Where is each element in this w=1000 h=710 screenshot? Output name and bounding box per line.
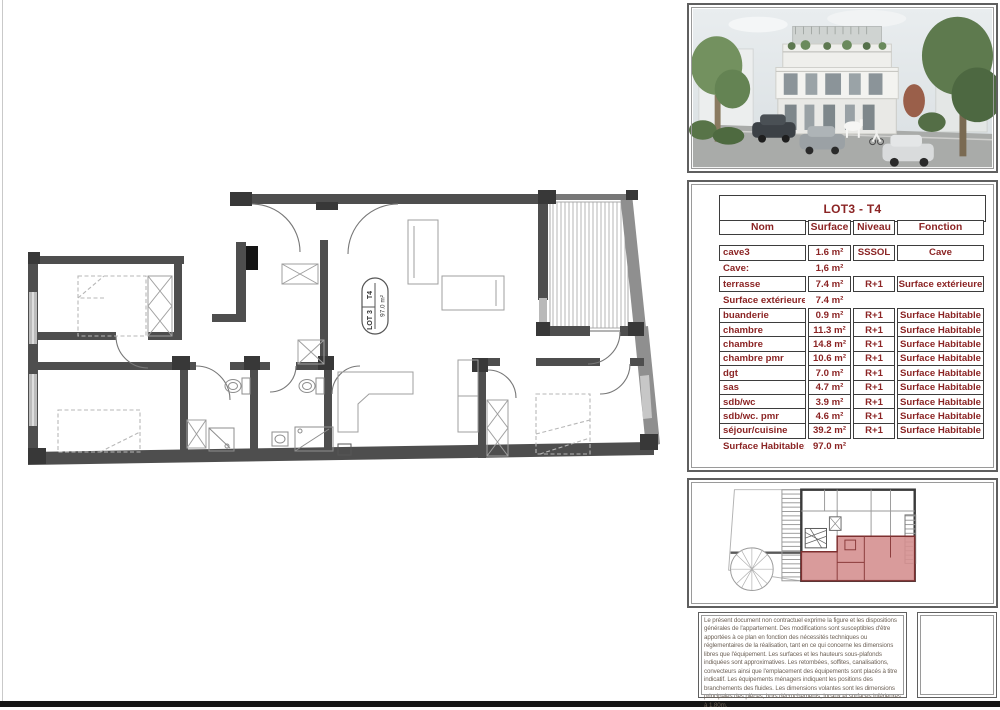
col-header-niveau: Niveau [853, 220, 895, 235]
cell-surface: 39.2 m² [808, 423, 851, 439]
surface-table: LOT3 - T4 Nom Surface Niveau Fonction ca… [719, 195, 986, 456]
lot-type: T4 [367, 291, 374, 299]
site-plan-panel [687, 478, 998, 608]
table-row: séjour/cuisine 39.2 m² R+1 Surface Habit… [719, 423, 986, 439]
legal-disclaimer: Le présent document non contractuel expr… [704, 617, 901, 693]
cell-surface: 1.6 m² [808, 245, 851, 261]
cell-nom: séjour/cuisine [719, 423, 806, 439]
table-row: terrasse 7.4 m² R+1 Surface extérieure [719, 276, 986, 292]
cell-surface: 7.4 m² [808, 293, 851, 307]
cell-niveau [853, 262, 895, 276]
site-plan [689, 480, 996, 606]
cell-niveau [853, 293, 895, 307]
table-summary-row: Surface Habitable: 97.0 m² [719, 440, 986, 454]
floor-plan-drawing: LOT 3 T4 97.0 m² [0, 180, 690, 700]
building-rendering-panel [687, 3, 998, 173]
terrace [550, 202, 628, 328]
cell-nom: Surface extérieure: 1 [719, 293, 806, 307]
plan-sheet: { "colors": { "accent_red": "#8b2424", "… [0, 0, 1000, 707]
cell-fonction: Surface extérieure [897, 276, 984, 292]
cell-fonction: Cave [897, 245, 984, 261]
table-title: LOT3 - T4 [719, 195, 986, 222]
cell-surface: 1,6 m² [808, 262, 851, 276]
stairs-strip [782, 490, 801, 581]
cell-nom: terrasse [719, 276, 806, 292]
cell-fonction: Surface Habitable [897, 423, 984, 439]
table-row: cave3 1.6 m² SSSOL Cave [719, 245, 986, 261]
table-summary-row: Cave: 1,6 m² [719, 262, 986, 276]
lot-label: LOT 3 T4 97.0 m² [362, 278, 388, 334]
table-header-row: Nom Surface Niveau Fonction [719, 220, 986, 235]
building [776, 26, 898, 133]
cell-surface: 7.4 m² [808, 276, 851, 292]
legal-panel: Le présent document non contractuel expr… [698, 612, 907, 698]
building-rendering [689, 5, 996, 171]
cell-surface: 97.0 m² [808, 440, 851, 454]
col-header-surface: Surface [808, 220, 851, 235]
col-header-nom: Nom [719, 220, 806, 235]
surface-table-panel: LOT3 - T4 Nom Surface Niveau Fonction ca… [687, 180, 998, 472]
empty-box [917, 612, 997, 698]
table-summary-row: Surface extérieure: 1 7.4 m² [719, 293, 986, 307]
cell-niveau: R+1 [853, 276, 895, 292]
cell-nom: Surface Habitable: [719, 440, 806, 454]
lot-number: LOT 3 [367, 310, 374, 330]
table-rows: cave3 1.6 m² SSSOL Cave Cave: 1,6 m² ter… [719, 245, 986, 454]
floor-plan-area: LOT 3 T4 97.0 m² [0, 180, 690, 700]
cell-fonction [897, 293, 984, 307]
spiral-stair [731, 548, 774, 591]
col-header-fonction: Fonction [897, 220, 984, 235]
cell-niveau: R+1 [853, 423, 895, 439]
cell-fonction [897, 262, 984, 276]
cell-nom: cave3 [719, 245, 806, 261]
cell-nom: Cave: [719, 262, 806, 276]
cell-fonction [897, 440, 984, 454]
cell-niveau: SSSOL [853, 245, 895, 261]
cell-niveau [853, 440, 895, 454]
sheet-bottom-edge [0, 701, 1000, 707]
bath-fixtures [209, 378, 333, 451]
lot-area: 97.0 m² [380, 295, 387, 317]
